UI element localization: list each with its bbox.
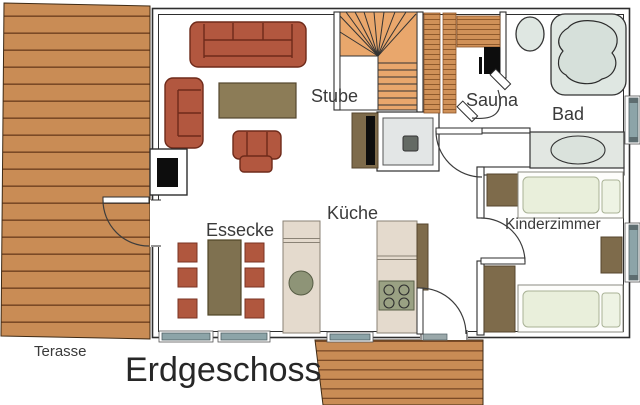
dining-chair [245,268,264,287]
loveseat [165,78,203,148]
wardrobe [601,237,622,273]
sauna-bench-left [424,13,440,113]
interior-wall-kinder-left-upper [477,167,484,218]
terrace-label: Terasse [34,344,87,359]
vanity-sink [551,136,605,164]
floor-title: Erdgeschoss [125,353,322,387]
room-label-sauna: Sauna [466,91,518,109]
kitchen-counter [377,221,417,333]
sofa [190,22,306,67]
kueche-window [327,332,373,342]
dining-chair [178,268,197,287]
wardrobe [487,174,518,206]
back-door-sill [423,334,447,340]
tv-screen [366,116,375,165]
bath-window [625,96,640,144]
bathtub-basin [558,21,617,84]
fridge [417,224,428,290]
sauna-heater-guard [479,57,482,74]
rear-deck [315,340,483,405]
kinderzimmer-window [625,223,640,282]
room-label-bad: Bad [552,105,584,123]
sauna-bench-left-back [443,13,456,113]
dining-chair [245,243,264,262]
coffee-table [219,83,296,118]
room-label-kinderzimmer: Kinderzimmer [505,217,601,233]
toilet [516,17,544,51]
terrace-door-leaf [103,197,149,203]
floorplan-drawing [0,0,640,405]
dining-chair [178,299,197,318]
kinder-door-leaf [481,258,525,264]
interior-wall-sauna-bad [500,12,506,78]
sauna-bench-top [457,16,500,47]
shower-drain [403,136,418,151]
bed [518,172,623,218]
dining-chair [245,299,264,318]
back-door-leaf [417,288,423,334]
wardrobe [484,266,515,332]
terrace-deck [1,3,150,339]
dining-table [208,240,241,315]
essecke-window [218,331,270,342]
terrace-door-opening [150,200,160,247]
sauna-heater [484,47,500,74]
room-label-kueche: Küche [327,204,378,222]
floorplan: Stube Essecke Küche Sauna Bad Kinderzimm… [0,0,640,405]
bad-door-leaf [436,128,482,134]
bed [518,285,623,332]
kitchen-sink [289,271,313,295]
interior-wall-bad-stub [482,128,530,133]
dining-chair [178,243,197,262]
interior-wall-kinder-left-lower [477,261,484,335]
room-label-essecke: Essecke [206,221,274,239]
wood-stove [157,158,178,187]
kitchen-counter [283,221,320,333]
essecke-window [159,331,213,342]
room-label-stube: Stube [311,87,358,105]
